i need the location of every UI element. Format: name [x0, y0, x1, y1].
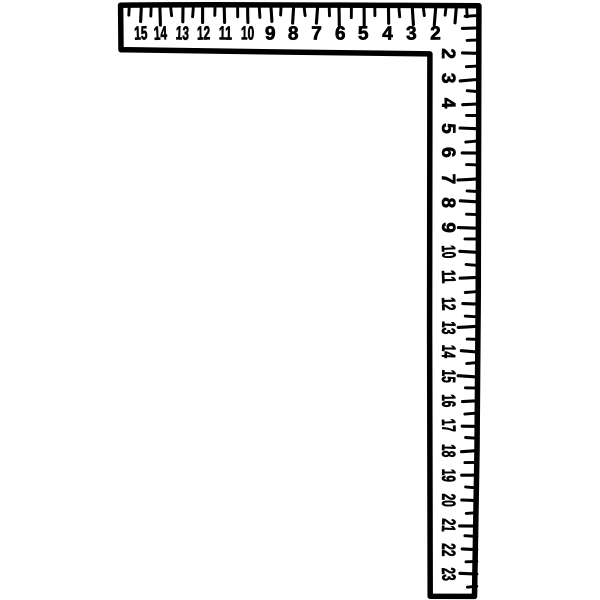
svg-text:3: 3 — [406, 23, 417, 44]
svg-text:5: 5 — [437, 123, 458, 135]
svg-text:2: 2 — [430, 23, 441, 44]
svg-text:22: 22 — [437, 543, 458, 557]
svg-text:23: 23 — [437, 567, 459, 581]
svg-text:4: 4 — [437, 98, 458, 109]
svg-text:8: 8 — [288, 23, 299, 44]
svg-text:20: 20 — [437, 493, 458, 506]
svg-text:6: 6 — [437, 147, 458, 159]
svg-text:14: 14 — [437, 344, 459, 358]
svg-text:7: 7 — [437, 174, 458, 185]
svg-text:14: 14 — [153, 23, 167, 45]
svg-text:10: 10 — [437, 245, 459, 259]
svg-text:19: 19 — [437, 469, 458, 483]
svg-text:9: 9 — [437, 222, 459, 234]
svg-text:4: 4 — [382, 23, 393, 44]
svg-text:5: 5 — [358, 23, 370, 44]
svg-text:15: 15 — [437, 369, 459, 383]
svg-text:3: 3 — [437, 73, 458, 84]
svg-text:10: 10 — [241, 23, 254, 44]
svg-text:8: 8 — [437, 197, 459, 209]
svg-text:2: 2 — [437, 48, 458, 59]
svg-text:9: 9 — [265, 23, 276, 44]
svg-text:17: 17 — [437, 418, 458, 432]
svg-text:15: 15 — [134, 23, 148, 44]
svg-text:7: 7 — [311, 23, 322, 44]
svg-text:12: 12 — [197, 23, 211, 44]
svg-text:12: 12 — [437, 297, 458, 311]
svg-text:21: 21 — [437, 518, 459, 533]
svg-text:16: 16 — [437, 394, 458, 407]
svg-text:6: 6 — [334, 23, 346, 44]
svg-text:13: 13 — [437, 321, 459, 335]
svg-text:13: 13 — [175, 23, 189, 45]
svg-text:18: 18 — [437, 444, 458, 458]
svg-text:11: 11 — [219, 23, 233, 44]
svg-text:11: 11 — [437, 270, 458, 284]
